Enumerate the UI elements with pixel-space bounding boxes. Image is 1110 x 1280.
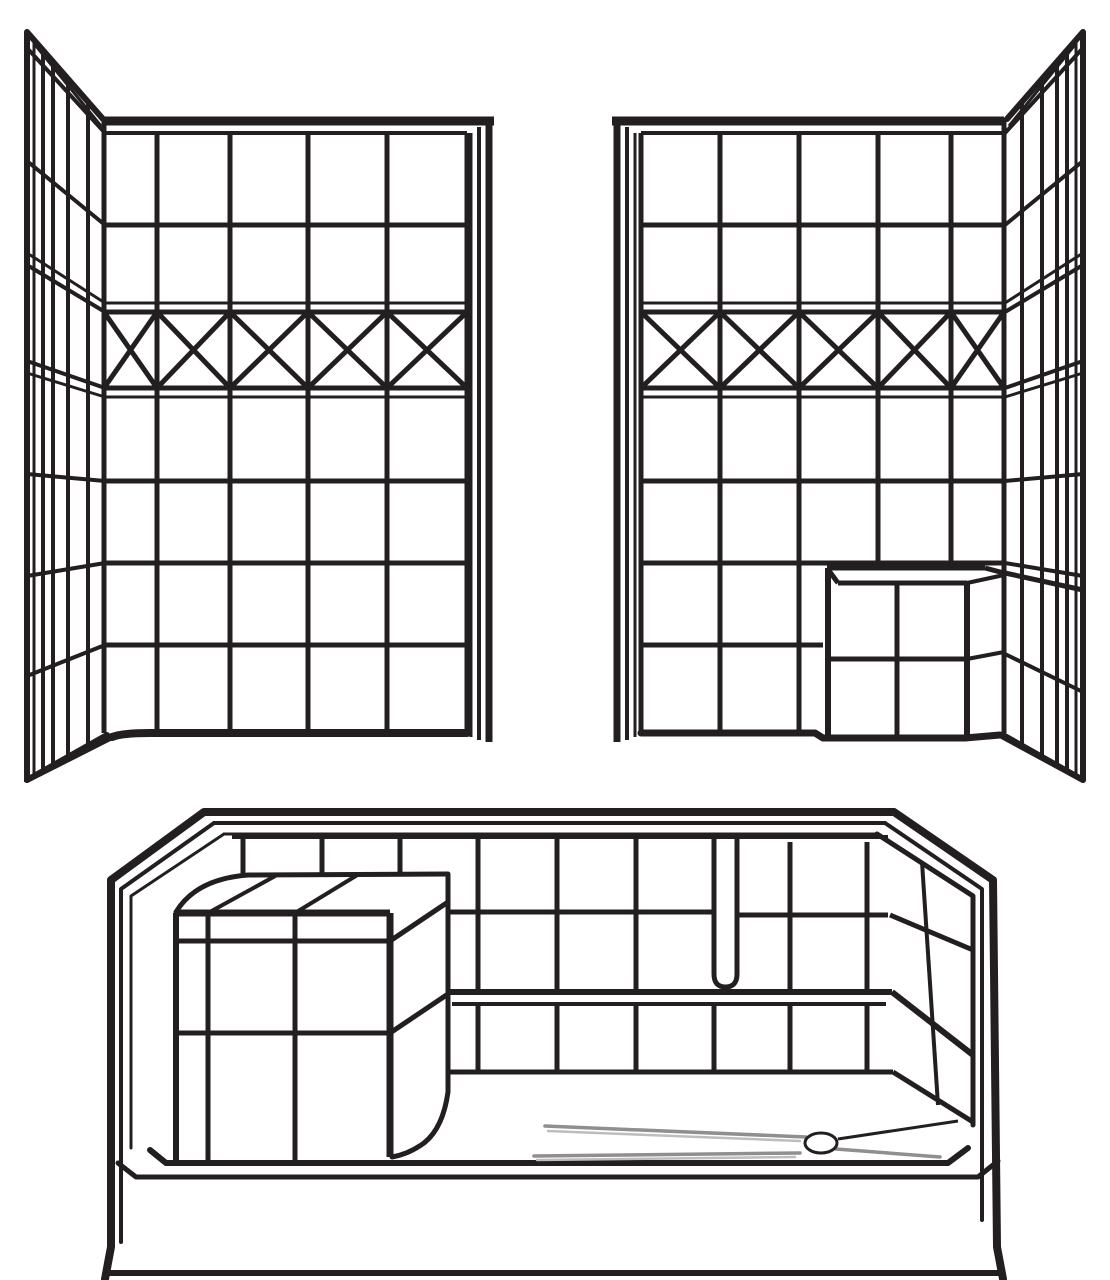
- right-wall-panel: [612, 32, 1083, 781]
- shower-kit-line-drawing: [0, 0, 1110, 1280]
- left-wall-panel: [27, 32, 494, 782]
- base-seat: [176, 874, 448, 1160]
- drain-outlet: [805, 1133, 837, 1153]
- shower-base: [103, 812, 1003, 1279]
- right-panel-corner-seat: [827, 568, 1004, 736]
- base-step: [448, 992, 893, 1072]
- drain: [534, 1121, 958, 1160]
- left-panel-tile-grid: [104, 133, 467, 732]
- left-panel-return-wall: [27, 32, 107, 782]
- right-panel-tile-grid: [641, 118, 1004, 733]
- figure-canvas: [0, 0, 1110, 1280]
- base-right-wall: [890, 862, 973, 1122]
- right-panel-return-wall: [1003, 32, 1083, 781]
